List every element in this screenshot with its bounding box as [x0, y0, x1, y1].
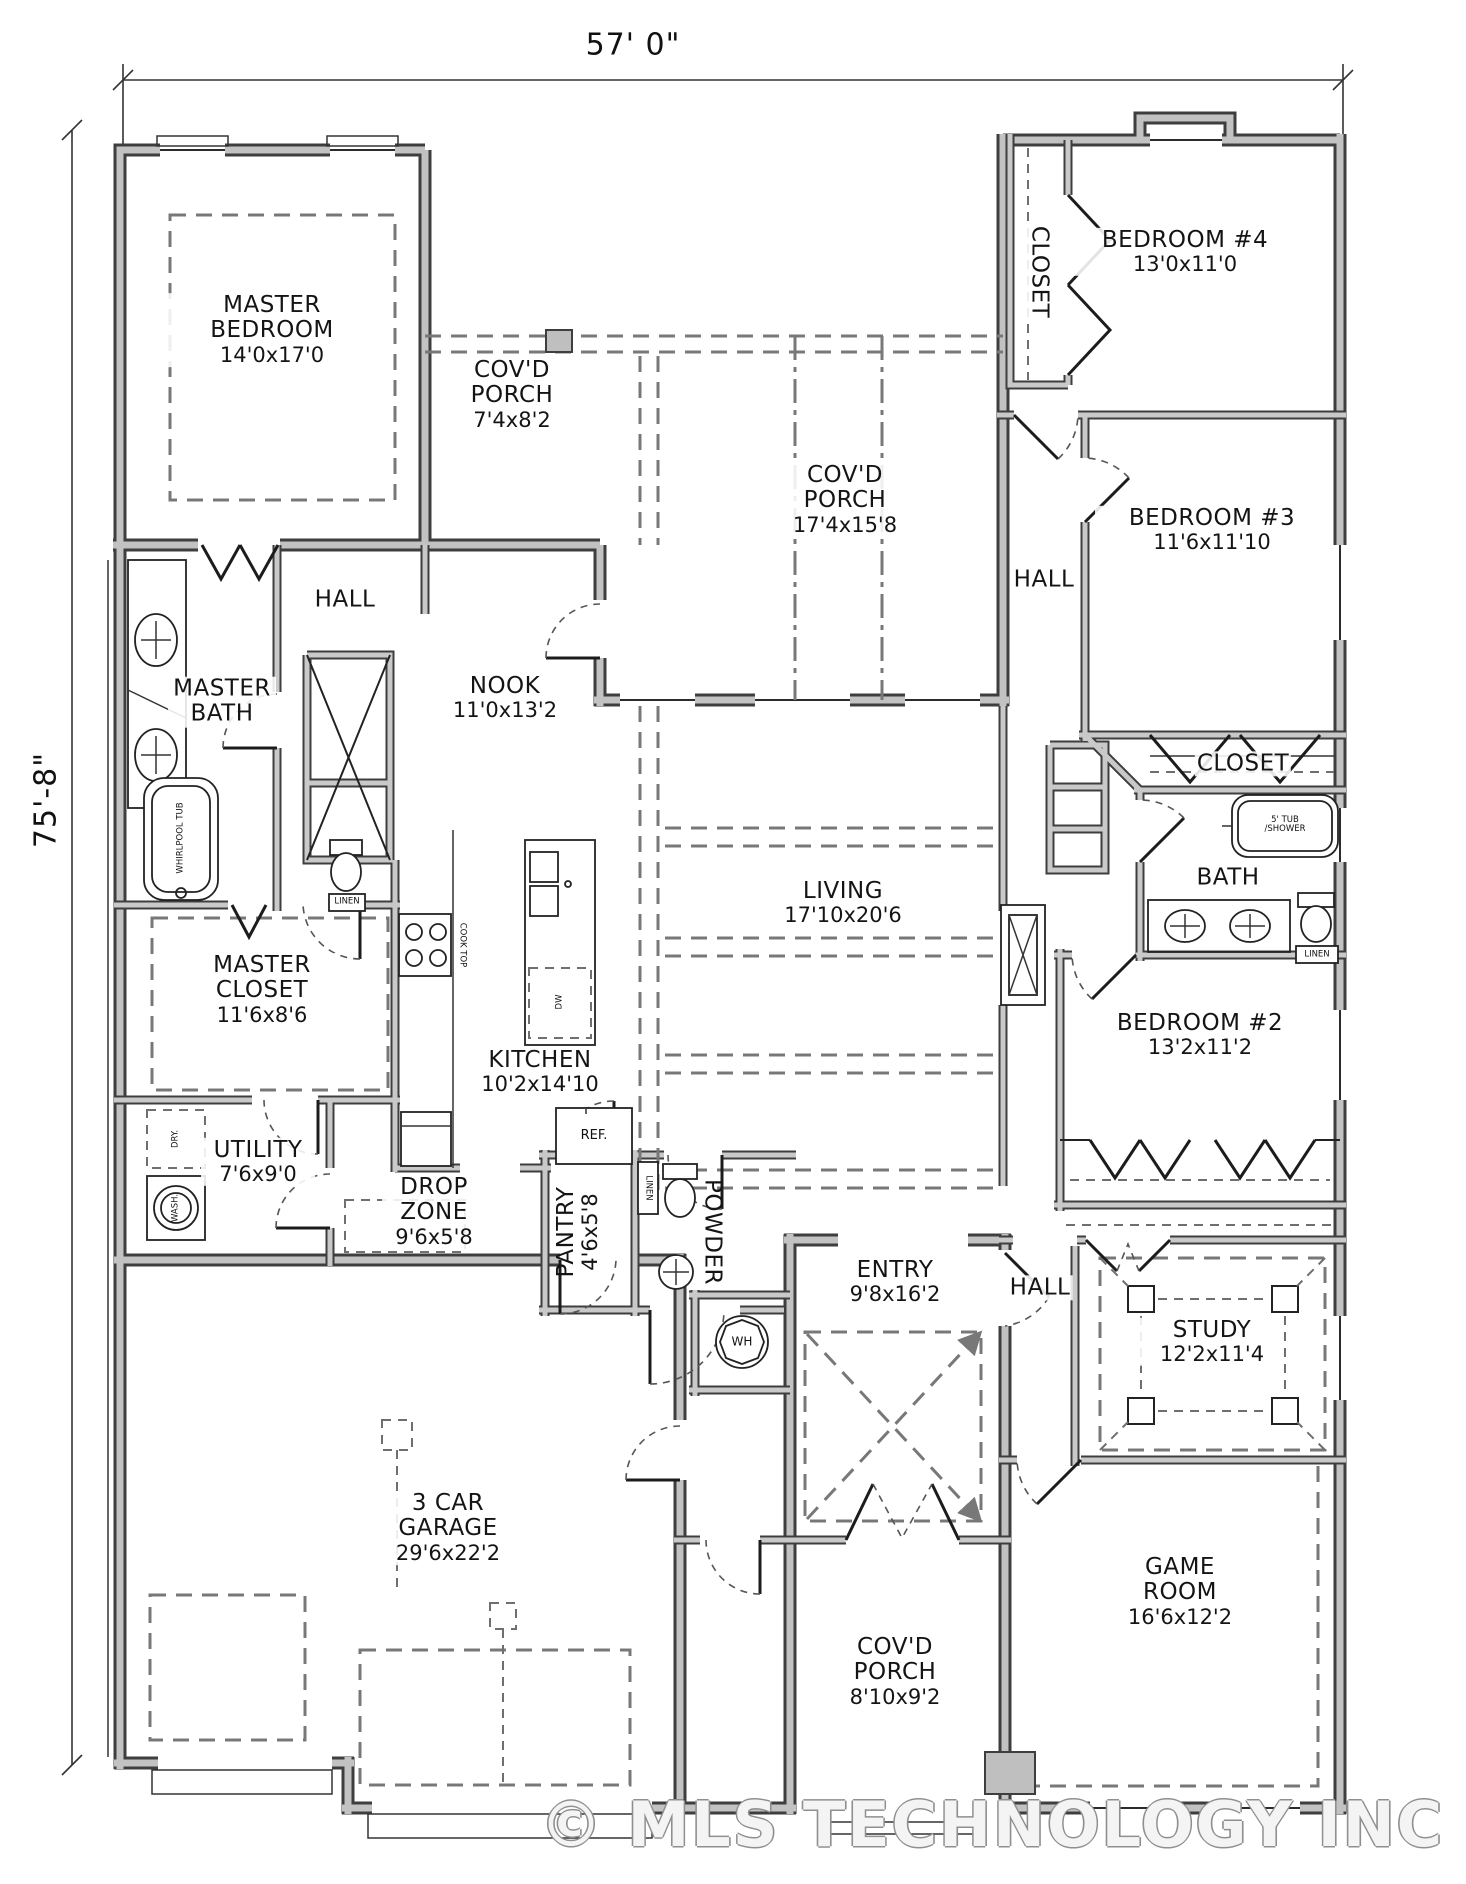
washer-label: WASH.	[172, 1194, 181, 1222]
room-label-utility: UTILITY7'6x9'0	[201, 1138, 315, 1186]
linen-label-powder: LINEN	[644, 1175, 653, 1200]
room-label-master-bedroom: MASTER BEDROOM14'0x17'0	[165, 293, 379, 367]
room-label-pantry: PANTRY4'6x5'8	[554, 1155, 602, 1309]
room-label-game-room: GAME ROOM16'6x12'2	[1123, 1555, 1237, 1629]
dryer-label: DRY.	[172, 1130, 181, 1148]
porch-roof-dash	[425, 336, 1003, 352]
bed2-closet-bifold-1	[1090, 1140, 1190, 1178]
room-label-living: LIVING17'10x20'6	[761, 879, 925, 927]
dimension-height-label: 75'-8"	[29, 748, 64, 852]
master-double-door	[202, 545, 278, 579]
room-label-hall-study: HALL	[1008, 1275, 1073, 1300]
entry-ceiling-x	[805, 1332, 981, 1521]
floor-plan-canvas	[0, 0, 1466, 1884]
room-label-nook: NOOK11'0x13'2	[438, 674, 572, 722]
room-label-covd-porch-front: COV'D PORCH8'10x9'2	[837, 1635, 953, 1709]
room-label-powder: POWDER	[699, 1177, 724, 1287]
room-label-bedroom-3: BEDROOM #311'6x11'10	[1095, 506, 1329, 554]
room-label-bedroom-2: BEDROOM #213'2x11'2	[1083, 1011, 1317, 1059]
ref-label: REF.	[581, 1129, 608, 1143]
room-label-hall-master: HALL	[313, 587, 378, 612]
cooktop-label: COOK TOP	[458, 923, 467, 968]
kitchen-counter	[399, 830, 453, 1168]
room-label-covd-porch-small: COV'D PORCH7'4x8'2	[454, 358, 570, 432]
front-double-door	[846, 1484, 959, 1540]
bed4-closet-bifold	[1068, 195, 1110, 375]
room-label-master-bath: MASTER BATH	[168, 677, 276, 728]
dw-label: DW	[556, 995, 565, 1010]
porch-pier	[546, 330, 572, 352]
linen-label-bath: LINEN	[1304, 951, 1329, 960]
master-closet-bifold	[232, 905, 266, 937]
linen-label-master: LINEN	[334, 898, 359, 907]
floor-plan-page: 57' 0" 75'-8" MASTER BEDROOM14'0x17'0 CO…	[0, 0, 1466, 1884]
room-label-bedroom-4: BEDROOM #413'0x11'0	[1068, 228, 1302, 276]
chase-x	[307, 655, 390, 860]
dimension-width-label: 57' 0"	[582, 28, 685, 63]
room-label-hall-top-right: HALL	[1012, 567, 1077, 592]
wh-label: WH	[732, 1336, 753, 1349]
room-label-bath: BATH	[1194, 865, 1261, 890]
room-label-kitchen: KITCHEN10'2x14'10	[463, 1048, 617, 1096]
kitchen-island	[525, 840, 595, 1045]
room-label-drop-zone: DROP ZONE9'6x5'8	[382, 1175, 486, 1249]
room-label-master-closet: MASTER CLOSET11'6x8'6	[185, 953, 339, 1027]
garage-ceiling-dash	[150, 1420, 630, 1785]
room-label-garage: 3 CAR GARAGE29'6x22'2	[381, 1491, 515, 1565]
room-label-closet-right: CLOSET	[1195, 751, 1291, 776]
room-label-covd-porch-large: COV'D PORCH17'4x15'8	[783, 463, 907, 537]
room-label-entry: ENTRY9'8x16'2	[828, 1258, 962, 1306]
bath-vanity	[1148, 900, 1290, 952]
fireplace	[1001, 905, 1045, 1005]
whirlpool-label: WHIRLPOOL TUB	[177, 802, 186, 873]
room-label-closet-bed4: CLOSET	[1026, 224, 1051, 320]
room-label-study: STUDY12'2x11'4	[1140, 1318, 1284, 1366]
bed2-closet-bifold-2	[1215, 1140, 1315, 1178]
watermark: © MLS TECHNOLOGY INC 2026	[540, 1788, 1466, 1861]
tub-shower-label: 5' TUB /SHOWER	[1259, 816, 1311, 834]
